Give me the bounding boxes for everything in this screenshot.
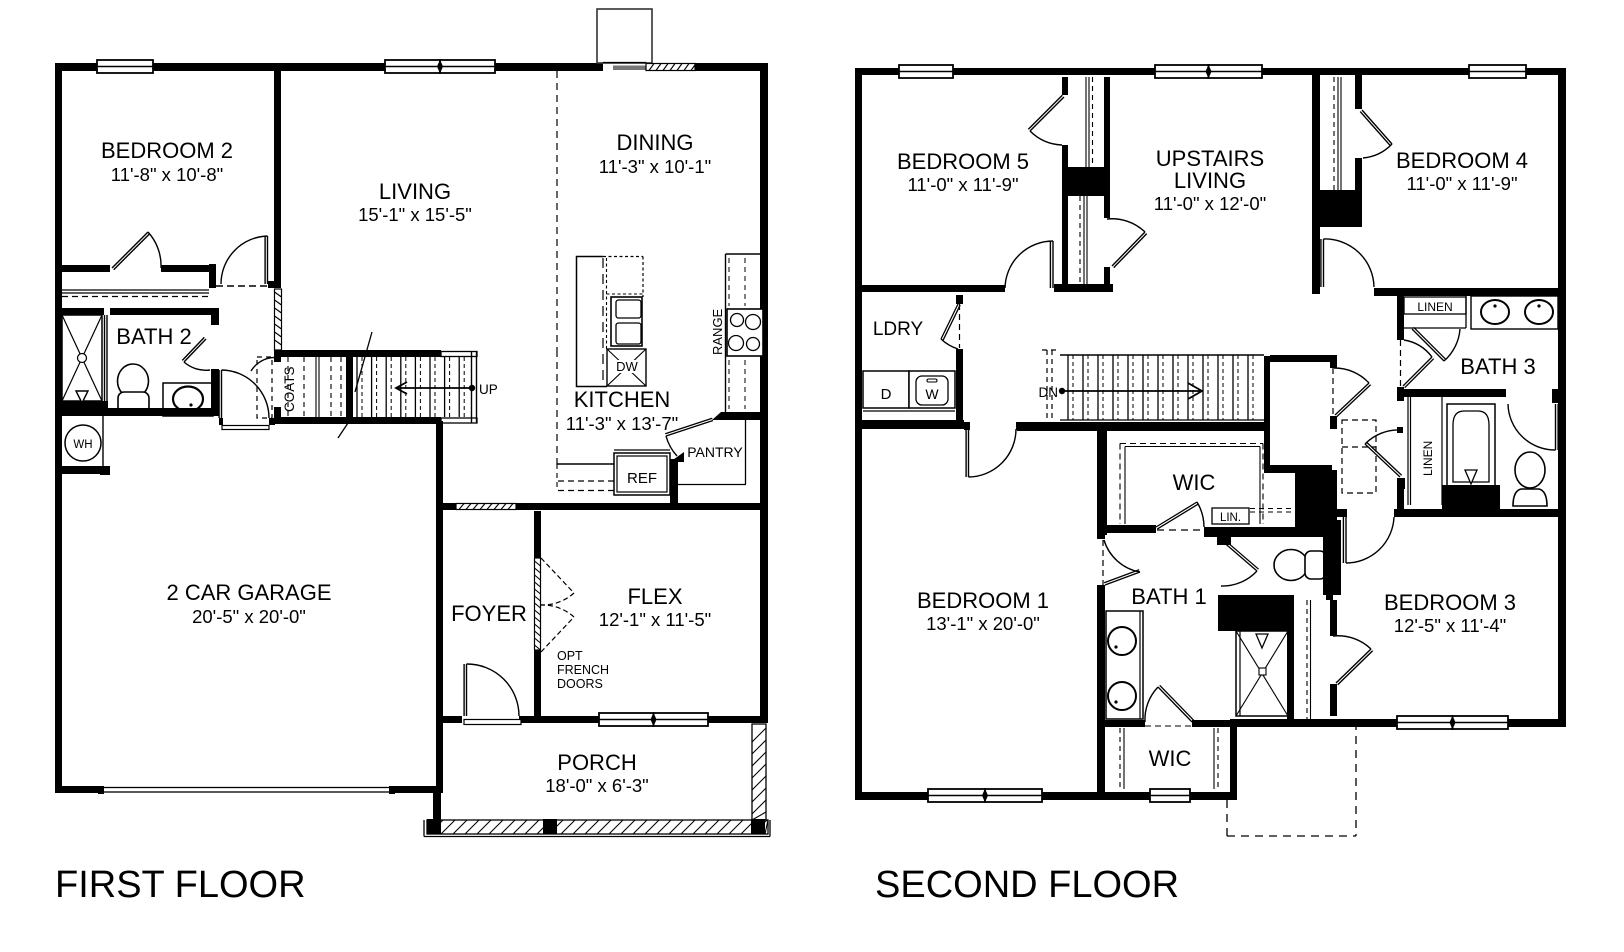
svg-text:20'-5" x 20'-0": 20'-5" x 20'-0" bbox=[192, 606, 306, 627]
svg-text:FOYER: FOYER bbox=[451, 601, 527, 626]
svg-text:LINEN: LINEN bbox=[1421, 441, 1435, 476]
svg-text:12'-5" x 11'-4": 12'-5" x 11'-4" bbox=[1394, 615, 1506, 636]
svg-text:BEDROOM 3: BEDROOM 3 bbox=[1384, 590, 1516, 615]
svg-text:11'-3" x 13'-7": 11'-3" x 13'-7" bbox=[566, 413, 678, 434]
svg-text:11'-0" x 12'-0": 11'-0" x 12'-0" bbox=[1154, 193, 1266, 214]
svg-text:WIC: WIC bbox=[1173, 470, 1216, 495]
svg-text:DINING: DINING bbox=[617, 130, 694, 155]
svg-text:11'-3" x 10'-1": 11'-3" x 10'-1" bbox=[599, 156, 711, 177]
svg-text:PANTRY: PANTRY bbox=[687, 444, 743, 460]
svg-text:FLEX: FLEX bbox=[627, 584, 682, 609]
svg-text:LIN.: LIN. bbox=[1220, 512, 1241, 524]
svg-text:UP: UP bbox=[479, 382, 498, 397]
svg-text:LIVING: LIVING bbox=[379, 179, 451, 204]
svg-text:18'-0" x 6'-3": 18'-0" x 6'-3" bbox=[545, 775, 649, 796]
svg-text:BEDROOM 2: BEDROOM 2 bbox=[101, 138, 233, 163]
svg-text:BATH 2: BATH 2 bbox=[116, 324, 191, 349]
svg-text:OPT: OPT bbox=[557, 649, 583, 663]
svg-text:FRENCH: FRENCH bbox=[557, 663, 609, 677]
svg-text:WIC: WIC bbox=[1149, 746, 1192, 771]
svg-text:WH: WH bbox=[73, 439, 92, 451]
svg-text:2 CAR GARAGE: 2 CAR GARAGE bbox=[166, 580, 331, 605]
svg-text:BEDROOM 4: BEDROOM 4 bbox=[1396, 148, 1528, 173]
svg-text:LDRY: LDRY bbox=[873, 319, 924, 340]
svg-text:FIRST FLOOR: FIRST FLOOR bbox=[55, 864, 306, 906]
svg-text:W: W bbox=[925, 386, 939, 402]
svg-text:RANGE: RANGE bbox=[710, 308, 725, 355]
svg-text:LINEN: LINEN bbox=[1417, 300, 1452, 314]
svg-text:DN: DN bbox=[1039, 385, 1059, 400]
svg-text:11'-8" x 10'-8": 11'-8" x 10'-8" bbox=[111, 164, 223, 185]
svg-text:REF: REF bbox=[627, 470, 657, 487]
svg-text:BATH 3: BATH 3 bbox=[1460, 354, 1535, 379]
svg-text:12'-1" x 11'-5": 12'-1" x 11'-5" bbox=[599, 609, 711, 630]
svg-text:DOORS: DOORS bbox=[557, 677, 603, 691]
svg-text:13'-1" x 20'-0": 13'-1" x 20'-0" bbox=[926, 613, 1040, 634]
svg-text:PORCH: PORCH bbox=[557, 750, 636, 775]
svg-text:COATS: COATS bbox=[282, 366, 297, 412]
svg-text:D: D bbox=[881, 386, 892, 403]
svg-text:BEDROOM 5: BEDROOM 5 bbox=[897, 149, 1029, 174]
svg-text:11'-0" x 11'-9": 11'-0" x 11'-9" bbox=[1406, 173, 1517, 194]
svg-text:KITCHEN: KITCHEN bbox=[574, 387, 671, 412]
svg-text:11'-0" x 11'-9": 11'-0" x 11'-9" bbox=[907, 174, 1018, 195]
svg-text:15'-1" x 15'-5": 15'-1" x 15'-5" bbox=[358, 204, 472, 225]
svg-text:BEDROOM 1: BEDROOM 1 bbox=[917, 588, 1049, 613]
svg-text:DW: DW bbox=[616, 359, 638, 374]
svg-text:SECOND FLOOR: SECOND FLOOR bbox=[875, 864, 1179, 906]
svg-text:LIVING: LIVING bbox=[1174, 168, 1246, 193]
svg-text:BATH 1: BATH 1 bbox=[1131, 584, 1206, 609]
